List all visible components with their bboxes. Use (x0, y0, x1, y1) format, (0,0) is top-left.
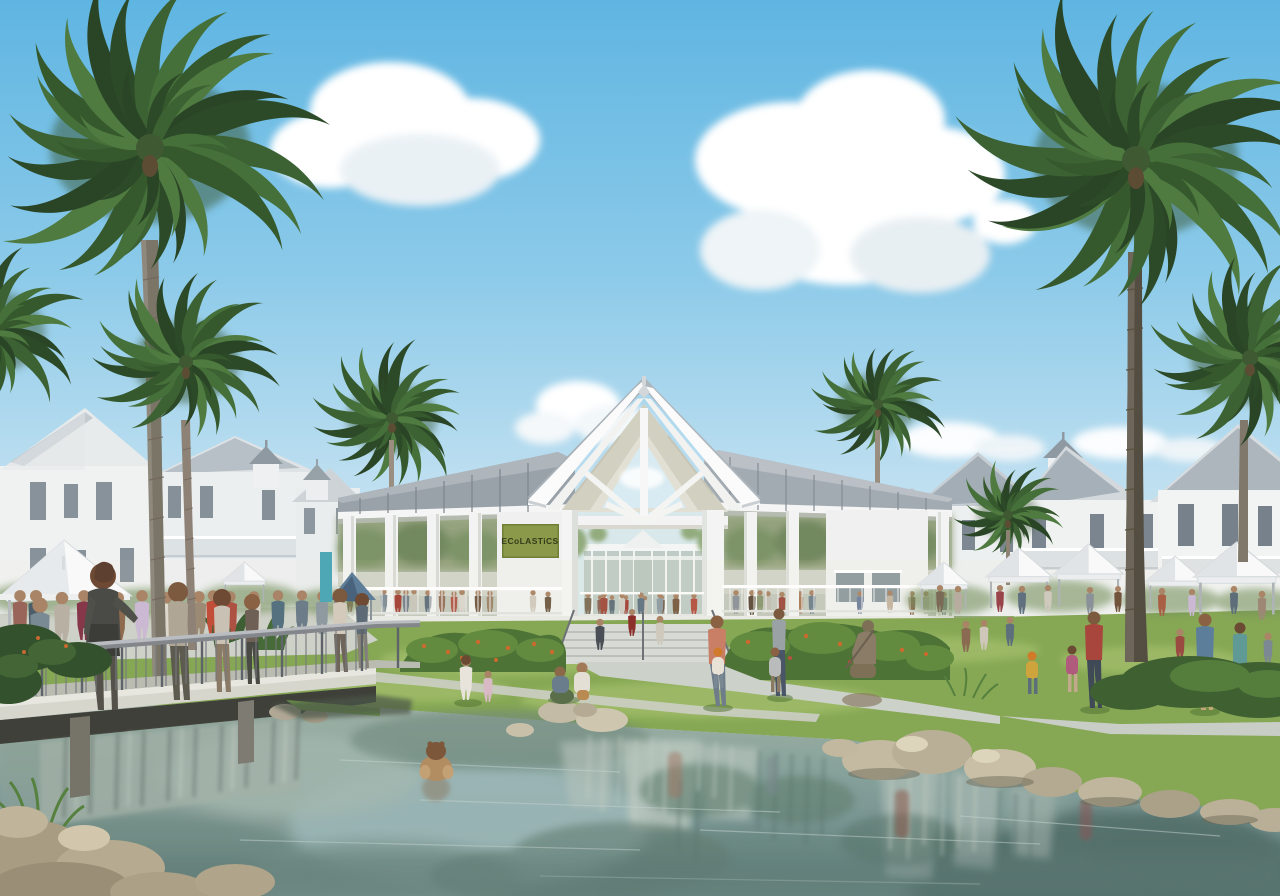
svg-text:ECoLASTiCS: ECoLASTiCS (501, 536, 558, 546)
